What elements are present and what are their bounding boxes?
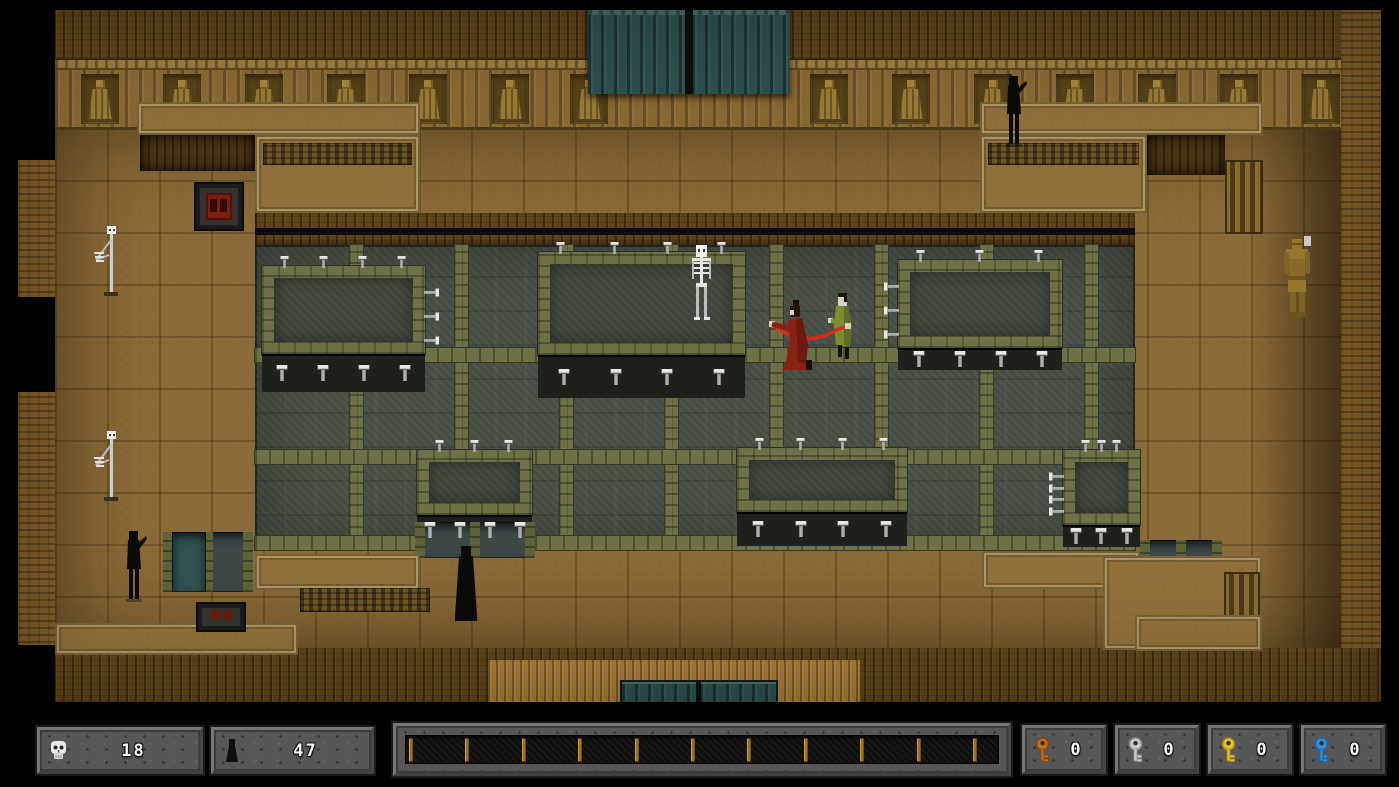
skull-counter-panel: 18 [37, 727, 203, 774]
key-counters: 0 0 0 0 [1022, 725, 1385, 774]
skeleton-pole-bottom [90, 431, 128, 503]
gold-statue [1280, 236, 1314, 320]
shadow-figure-top [1000, 76, 1028, 148]
silver-key-icon [1128, 737, 1143, 763]
red-robed-player-with-whip [766, 300, 858, 372]
entities-layer [0, 0, 1399, 713]
dark-robed-figure [450, 546, 482, 626]
progress-bar-track [405, 735, 999, 764]
progress-tick [409, 738, 413, 761]
skull-icon [50, 740, 67, 762]
progress-tick [522, 738, 526, 761]
progress-tick [860, 738, 864, 761]
skull-counter-value: 18 [67, 741, 200, 761]
progress-tick [578, 738, 582, 761]
progress-tick [635, 738, 639, 761]
skeleton-enemy [686, 245, 716, 321]
progress-tick [973, 738, 977, 761]
progress-tick [691, 738, 695, 761]
shadow-figure-left [120, 531, 148, 603]
game-map[interactable] [0, 0, 1399, 713]
gold-key-icon [1221, 737, 1236, 763]
orange-key-icon [1035, 737, 1050, 763]
game-screen: { "hud": { "skull_counter": {"icon": "sk… [0, 0, 1399, 787]
hud: 18 47 0 0 0 0 [0, 713, 1399, 787]
figure-icon [224, 739, 240, 762]
gold-key-counter-panel: 0 [1208, 725, 1292, 774]
figure-counter-panel: 47 [211, 727, 374, 774]
progress-tick [917, 738, 921, 761]
gold-key-counter-value: 0 [1236, 740, 1289, 760]
blue-key-icon [1314, 737, 1329, 763]
skeleton-pole-top [90, 226, 128, 298]
orange-key-counter-panel: 0 [1022, 725, 1106, 774]
orange-key-counter-value: 0 [1050, 740, 1103, 760]
silver-key-counter-panel: 0 [1115, 725, 1199, 774]
progress-tick [465, 738, 469, 761]
blue-key-counter-panel: 0 [1301, 725, 1385, 774]
silver-key-counter-value: 0 [1143, 740, 1196, 760]
blue-key-counter-value: 0 [1329, 740, 1382, 760]
progress-tick [747, 738, 751, 761]
progress-bar-frame [393, 723, 1011, 776]
figure-counter-value: 47 [240, 741, 371, 761]
progress-tick [804, 738, 808, 761]
